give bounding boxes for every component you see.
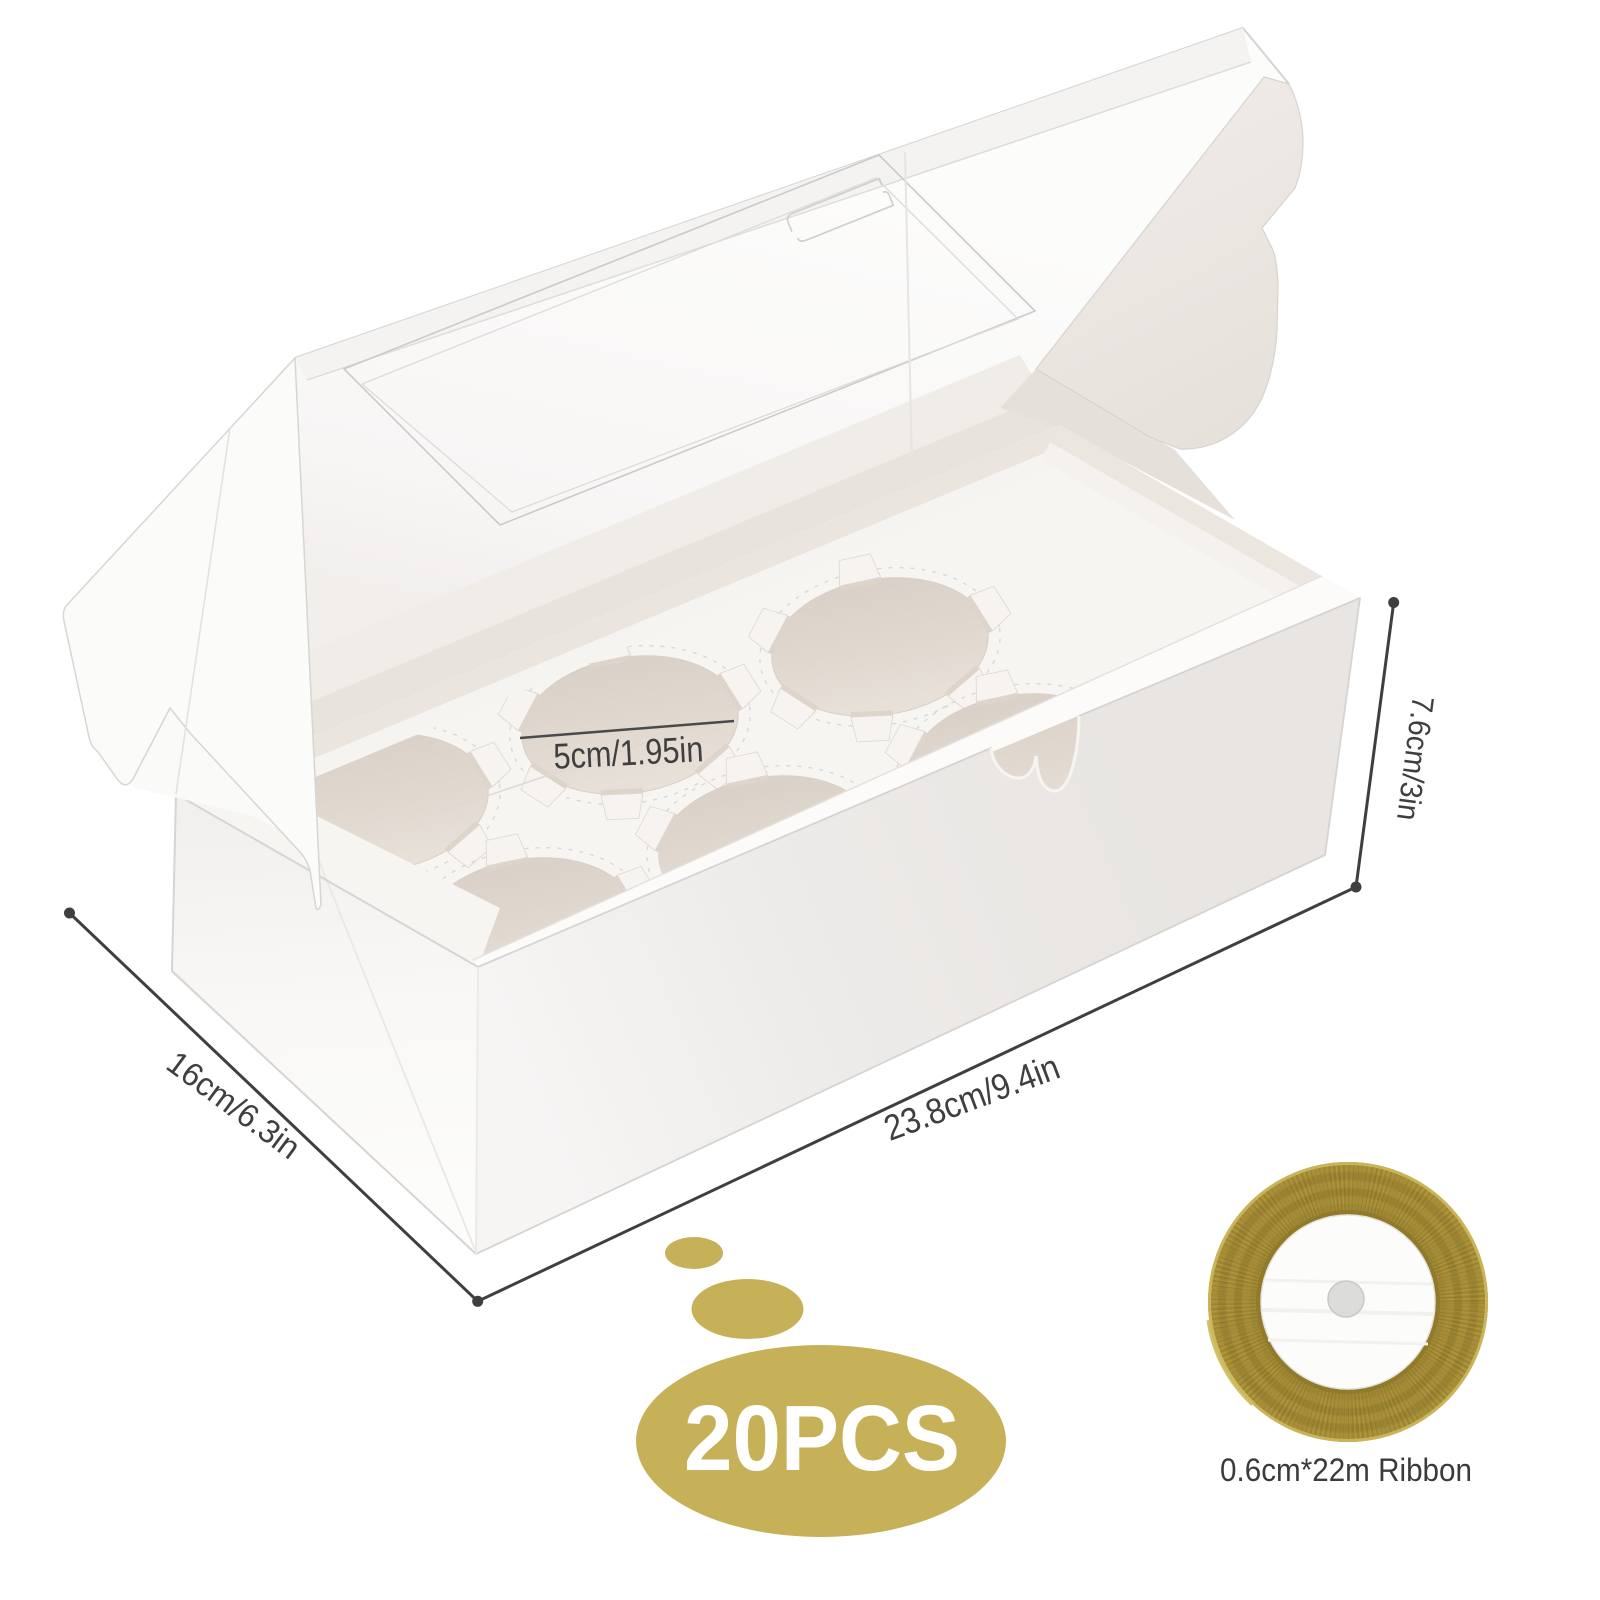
svg-text:20PCS: 20PCS [684, 1386, 960, 1490]
svg-text:0.6cm*22m Ribbon: 0.6cm*22m Ribbon [1220, 1452, 1472, 1488]
svg-text:5cm/1.95in: 5cm/1.95in [552, 728, 704, 777]
